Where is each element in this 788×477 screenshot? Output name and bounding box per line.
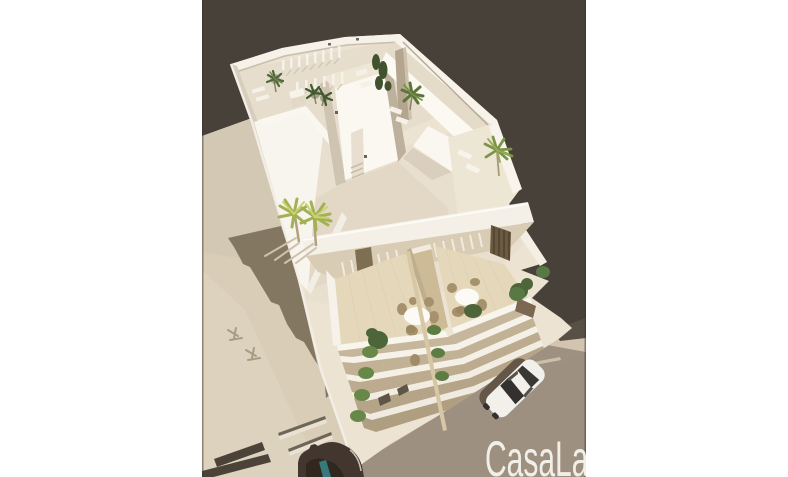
- svg-text:CasaLa: CasaLa: [485, 431, 588, 477]
